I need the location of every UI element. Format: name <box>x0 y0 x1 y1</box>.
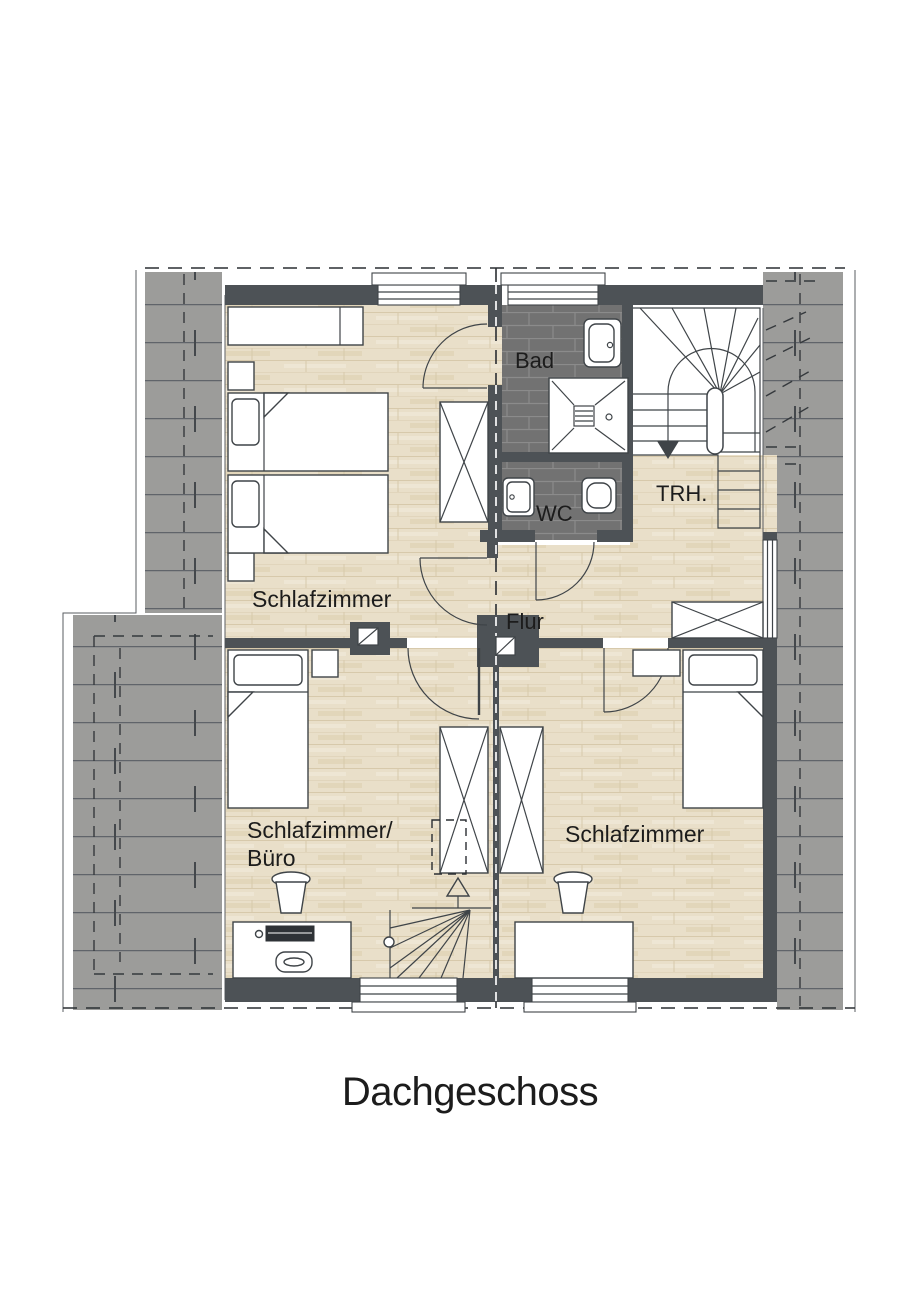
window-bedroom-office <box>352 978 465 1012</box>
wall-bedroom-bath-upper <box>488 285 502 327</box>
wardrobe <box>440 727 488 873</box>
floor-plan-drawing: Schlafzimmer Bad WC TRH. Flur Schlafzimm… <box>0 0 920 1305</box>
wall-hall-south-1 <box>225 638 350 648</box>
wall-wc-south-east <box>597 530 633 542</box>
window-bedroom-top <box>372 273 466 305</box>
window-hallway-east <box>763 532 777 638</box>
wall-bottom-1 <box>225 978 360 1002</box>
stair-walk-line <box>657 349 755 459</box>
dresser <box>228 307 363 345</box>
room-label-wc: WC <box>536 501 573 526</box>
roof-area-right-lower <box>777 548 843 1010</box>
wall-bedroom-bath-lower <box>488 385 502 530</box>
wardrobe <box>440 402 488 522</box>
desk-phone-icon <box>276 952 312 972</box>
wall-hall-south-4 <box>668 638 777 648</box>
nightstand <box>633 650 680 676</box>
roof-area-left-lower <box>73 615 222 1010</box>
mouse-icon <box>256 931 263 938</box>
single-bed <box>683 650 763 808</box>
chimney-west <box>350 622 390 655</box>
wall-bottom-2 <box>457 978 532 1002</box>
wall-wc-south-west <box>480 530 535 542</box>
washbasin-bath <box>584 319 621 367</box>
room-label-bedroom-office-line1: Schlafzimmer/ <box>247 817 393 843</box>
room-label-bathroom: Bad <box>515 348 554 373</box>
room-label-bedroom-office-line2: Büro <box>247 845 296 871</box>
toilet <box>582 478 616 513</box>
room-label-bedroom-bottom-right: Schlafzimmer <box>565 821 705 847</box>
wall-top-3 <box>598 285 763 305</box>
window-bathroom <box>501 273 605 305</box>
stair-handrail <box>707 388 723 454</box>
wall-east <box>763 640 777 1002</box>
wall-hall-south-2 <box>390 638 407 648</box>
washbasin-wc <box>503 478 534 516</box>
wall-hall-south-3 <box>539 638 603 648</box>
desk <box>233 922 351 978</box>
window-bedroom-bottom-right <box>524 978 636 1012</box>
stair-newel-post <box>384 937 394 947</box>
shower <box>549 378 628 453</box>
plan-title: Dachgeschoss <box>342 1070 598 1114</box>
nightstand <box>312 650 338 677</box>
wardrobe <box>672 602 763 638</box>
nightstand <box>228 553 254 581</box>
single-bed <box>228 650 308 808</box>
wardrobe <box>500 727 543 873</box>
room-label-hallway: Flur <box>506 609 544 634</box>
floor-bathroom-doorway <box>488 327 502 385</box>
room-label-bedroom-top-left: Schlafzimmer <box>252 586 392 612</box>
floor-plan-page: Schlafzimmer Bad WC TRH. Flur Schlafzimm… <box>0 0 920 1305</box>
desk <box>515 922 633 978</box>
wall-bottom-3 <box>628 978 777 1002</box>
wall-top-1 <box>225 285 378 305</box>
nightstand <box>228 362 254 390</box>
room-label-stairwell: TRH. <box>656 481 707 506</box>
